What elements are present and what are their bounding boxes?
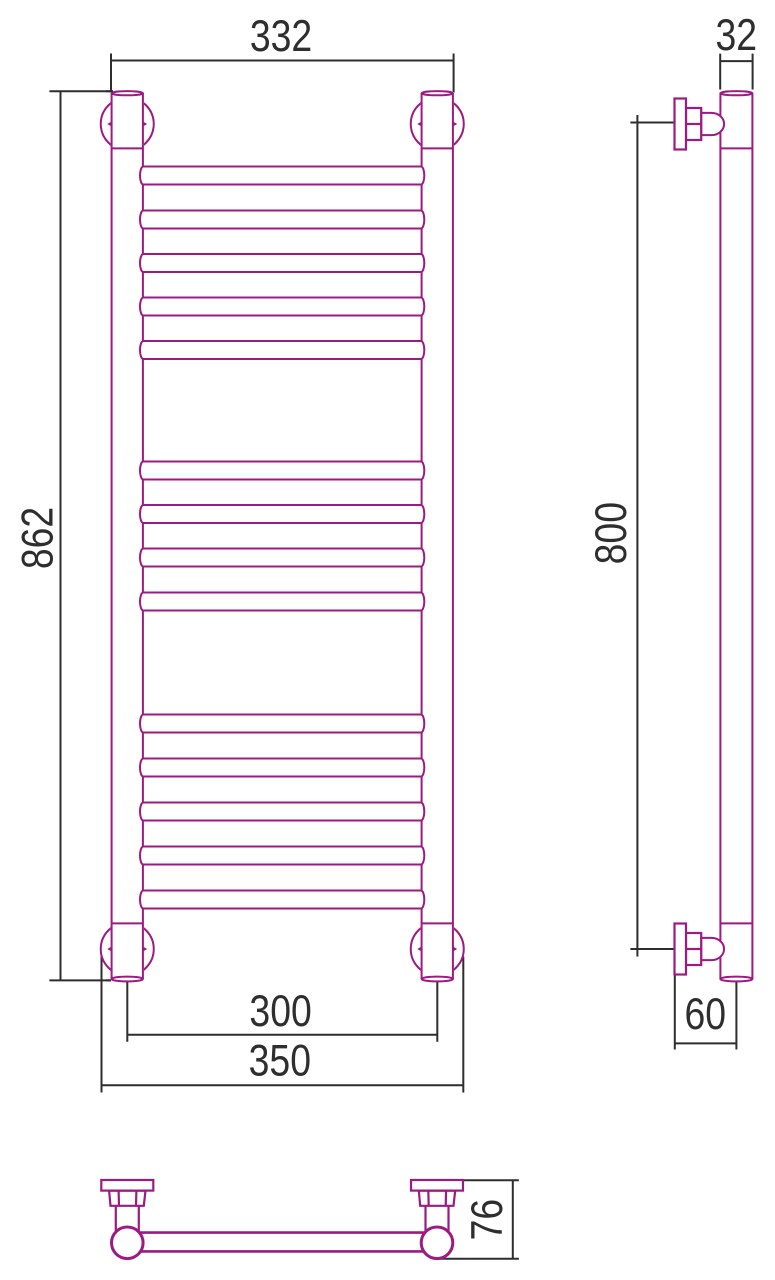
svg-text:350: 350: [249, 1035, 311, 1085]
svg-text:332: 332: [250, 11, 312, 61]
svg-text:60: 60: [685, 989, 727, 1039]
svg-text:76: 76: [462, 1199, 512, 1241]
svg-text:300: 300: [249, 986, 311, 1036]
svg-text:800: 800: [586, 502, 636, 564]
svg-text:862: 862: [12, 507, 62, 569]
svg-text:32: 32: [716, 10, 758, 60]
